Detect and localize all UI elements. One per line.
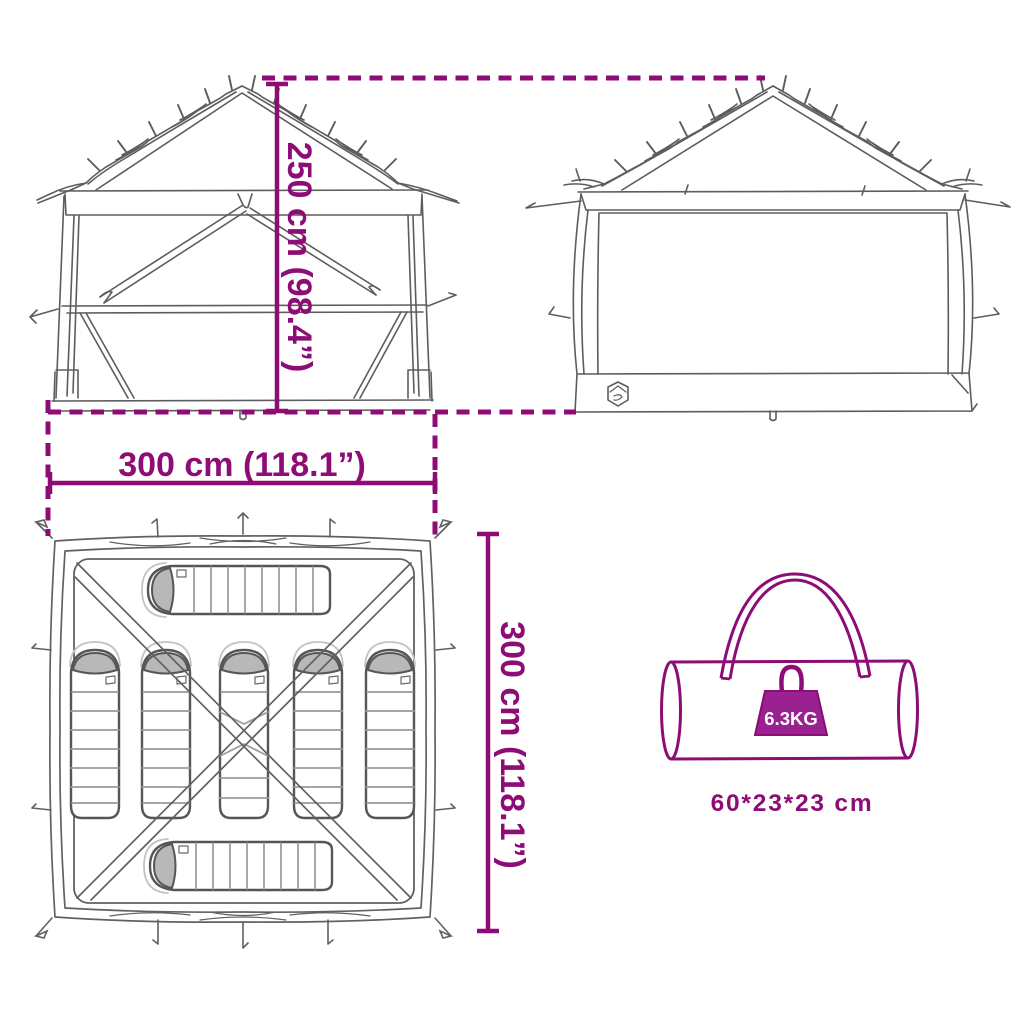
- svg-text:300 cm (118.1”): 300 cm (118.1”): [493, 621, 531, 869]
- svg-text:6.3KG: 6.3KG: [764, 708, 817, 729]
- svg-text:250 cm (98.4”): 250 cm (98.4”): [280, 142, 318, 373]
- svg-text:300 cm (118.1”): 300 cm (118.1”): [118, 446, 366, 484]
- svg-text:60*23*23 cm: 60*23*23 cm: [711, 790, 874, 817]
